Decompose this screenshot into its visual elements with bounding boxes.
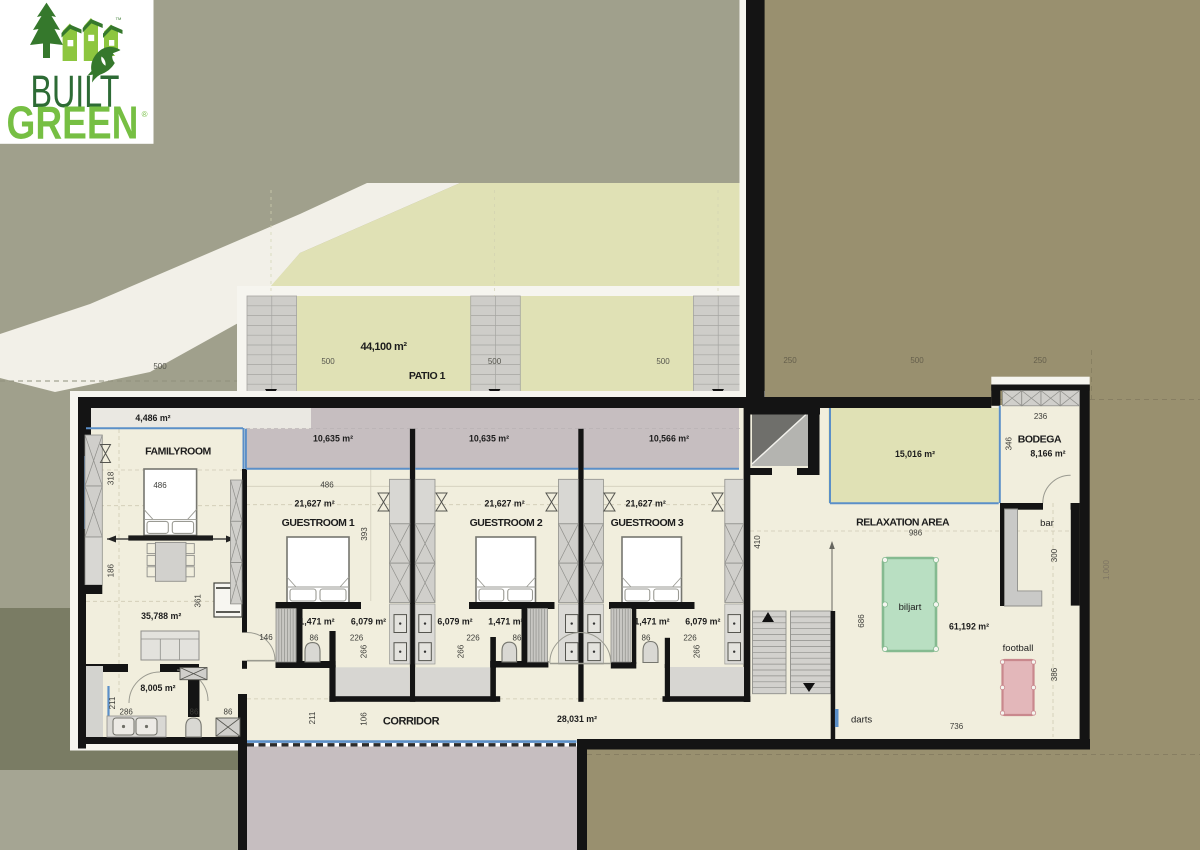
svg-text:211: 211 [308,711,317,724]
svg-text:biljart: biljart [899,602,922,613]
svg-text:146: 146 [259,633,273,642]
svg-text:236: 236 [1034,412,1048,421]
svg-text:86: 86 [310,634,319,643]
svg-text:1.000: 1.000 [1102,559,1111,580]
svg-text:986: 986 [909,529,923,538]
svg-text:21,627 m²: 21,627 m² [295,499,335,509]
svg-text:GUESTROOM 1: GUESTROOM 1 [282,517,355,529]
svg-text:1,471 m²: 1,471 m² [488,617,523,627]
svg-text:486: 486 [153,481,167,490]
svg-text:286: 286 [120,708,134,717]
svg-text:736: 736 [950,722,964,731]
svg-text:10,635 m²: 10,635 m² [313,434,353,444]
svg-text:361: 361 [194,594,203,608]
svg-text:RELAXATION AREA: RELAXATION AREA [856,517,950,529]
svg-text:darts: darts [851,715,872,726]
svg-text:250: 250 [1033,356,1047,365]
svg-text:21,627 m²: 21,627 m² [626,499,666,509]
svg-text:bar: bar [1040,518,1054,529]
svg-text:8,005 m²: 8,005 m² [140,683,175,693]
svg-text:686: 686 [857,614,866,628]
svg-text:FAMILYROOM: FAMILYROOM [145,446,211,458]
svg-text:386: 386 [1050,667,1059,681]
svg-text:266: 266 [359,644,368,658]
svg-text:106: 106 [359,712,368,726]
svg-text:15,016 m²: 15,016 m² [895,449,935,459]
svg-text:10,566 m²: 10,566 m² [649,434,689,444]
svg-text:226: 226 [466,634,480,643]
svg-text:1,471 m²: 1,471 m² [299,617,334,627]
svg-text:486: 486 [320,481,334,490]
svg-text:346: 346 [1005,436,1014,450]
svg-text:500: 500 [488,357,502,366]
svg-text:266: 266 [456,644,465,658]
svg-text:226: 226 [350,634,364,643]
svg-text:4,486 m²: 4,486 m² [135,413,170,423]
svg-text:TM: TM [116,16,122,21]
svg-text:318: 318 [106,471,115,485]
svg-text:®: ® [142,110,148,119]
svg-text:86: 86 [190,708,199,717]
svg-text:BODEGA: BODEGA [1018,434,1062,446]
svg-text:6,079 m²: 6,079 m² [685,617,720,627]
svg-text:28,031 m²: 28,031 m² [557,714,597,724]
svg-text:CORRIDOR: CORRIDOR [383,716,440,728]
svg-text:500: 500 [656,357,670,366]
svg-text:GREEN: GREEN [7,97,139,149]
svg-text:8,166 m²: 8,166 m² [1030,449,1065,459]
svg-text:300: 300 [1050,548,1059,562]
svg-text:61,192 m²: 61,192 m² [949,622,989,632]
svg-text:21,627 m²: 21,627 m² [485,499,525,509]
svg-text:86: 86 [513,634,522,643]
svg-text:6,079 m²: 6,079 m² [351,617,386,627]
svg-text:250: 250 [783,356,797,365]
svg-text:GUESTROOM 2: GUESTROOM 2 [470,517,543,529]
svg-text:86: 86 [224,708,233,717]
svg-text:10,635 m²: 10,635 m² [469,434,509,444]
svg-text:GUESTROOM 3: GUESTROOM 3 [611,517,684,529]
svg-text:186: 186 [106,563,115,577]
svg-text:1,471 m²: 1,471 m² [634,617,669,627]
svg-text:PATIO 1: PATIO 1 [409,370,446,382]
svg-text:6,079 m²: 6,079 m² [437,617,472,627]
svg-text:393: 393 [360,527,369,541]
svg-text:500: 500 [910,356,924,365]
svg-text:500: 500 [321,357,335,366]
svg-text:86: 86 [642,634,651,643]
svg-text:266: 266 [693,644,702,658]
svg-text:226: 226 [683,634,697,643]
svg-text:211: 211 [108,696,117,709]
svg-text:500: 500 [153,362,167,371]
svg-text:35,788 m²: 35,788 m² [141,611,181,621]
svg-text:football: football [1003,643,1034,654]
svg-text:410: 410 [753,535,762,549]
svg-text:44,100 m²: 44,100 m² [360,341,407,353]
